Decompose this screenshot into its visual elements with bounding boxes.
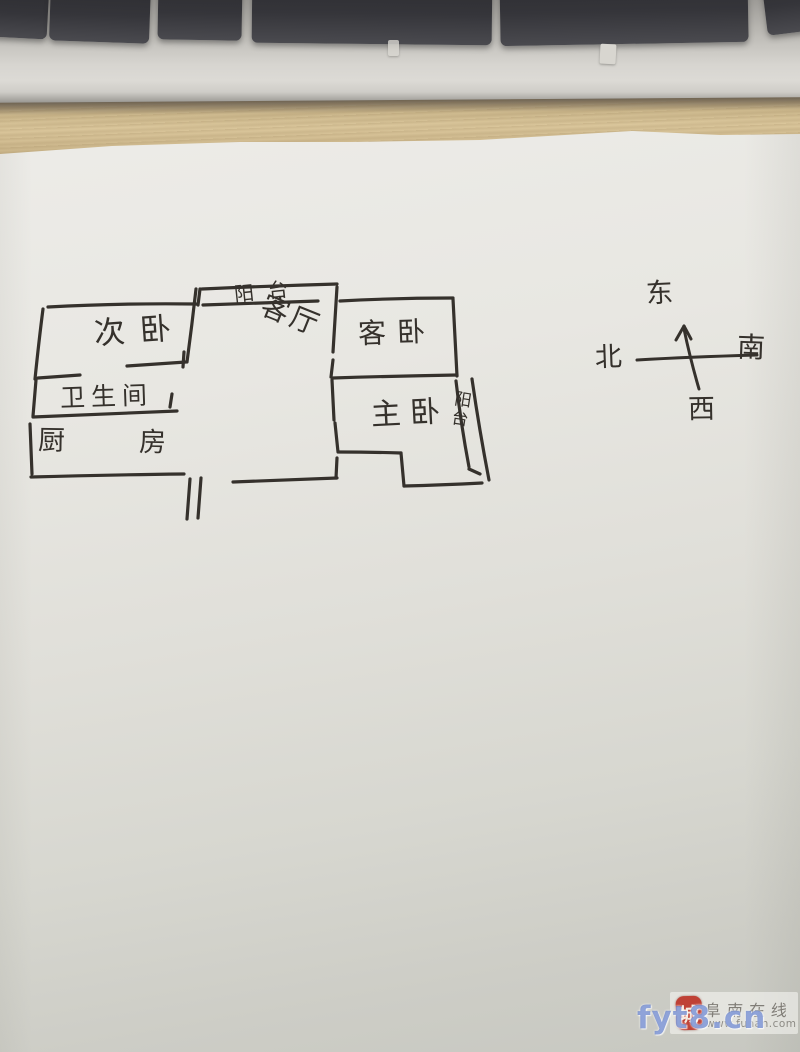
wall bbox=[336, 458, 337, 478]
compass-label-south: 南 bbox=[737, 334, 766, 363]
room-label-kitchen: 厨房 bbox=[38, 427, 240, 458]
wall bbox=[331, 360, 333, 377]
wall bbox=[48, 304, 196, 307]
watermark-overlay-text: fyt8.cn bbox=[637, 1000, 766, 1036]
room-label-secondary-bedroom: 次卧 bbox=[93, 313, 187, 350]
compass-label-west: 西 bbox=[688, 396, 715, 423]
wall bbox=[198, 289, 200, 305]
entrance-door-tick bbox=[187, 479, 190, 519]
wall bbox=[404, 483, 482, 486]
room-label-bathroom: 卫生间 bbox=[60, 382, 154, 410]
wall bbox=[340, 298, 453, 301]
wall bbox=[233, 478, 337, 482]
compass-label-east: 东 bbox=[645, 279, 673, 307]
wall bbox=[333, 287, 337, 352]
wall bbox=[183, 352, 184, 367]
wall bbox=[33, 380, 36, 416]
wall bbox=[339, 452, 401, 453]
wall bbox=[35, 309, 43, 379]
compass-label-north: 北 bbox=[595, 344, 623, 372]
entrance-door-tick bbox=[198, 478, 201, 518]
room-label-master-bedroom: 主卧 bbox=[370, 397, 449, 431]
room-label-guest-bedroom: 客卧 bbox=[358, 318, 437, 349]
room-label-balcony-right: 阳台 bbox=[447, 389, 470, 429]
wall bbox=[401, 453, 404, 486]
wall bbox=[187, 289, 196, 362]
door-tick bbox=[170, 394, 172, 407]
wall bbox=[453, 299, 457, 376]
wall bbox=[469, 469, 480, 474]
wall bbox=[30, 424, 32, 474]
wall bbox=[31, 474, 184, 477]
photo-scene: 次卧 阳台 客厅 客卧 主卧 阳台 卫生间 厨房 东 北 南 西 城 阜南在线 … bbox=[0, 0, 800, 1052]
wall bbox=[332, 380, 334, 420]
wall bbox=[472, 379, 489, 480]
floorplan-drawing bbox=[0, 0, 800, 1052]
wall bbox=[33, 411, 177, 417]
wall bbox=[127, 362, 186, 366]
compass-arrowhead bbox=[676, 326, 684, 340]
wall bbox=[333, 375, 457, 378]
wall bbox=[335, 423, 338, 452]
wall bbox=[38, 375, 80, 378]
